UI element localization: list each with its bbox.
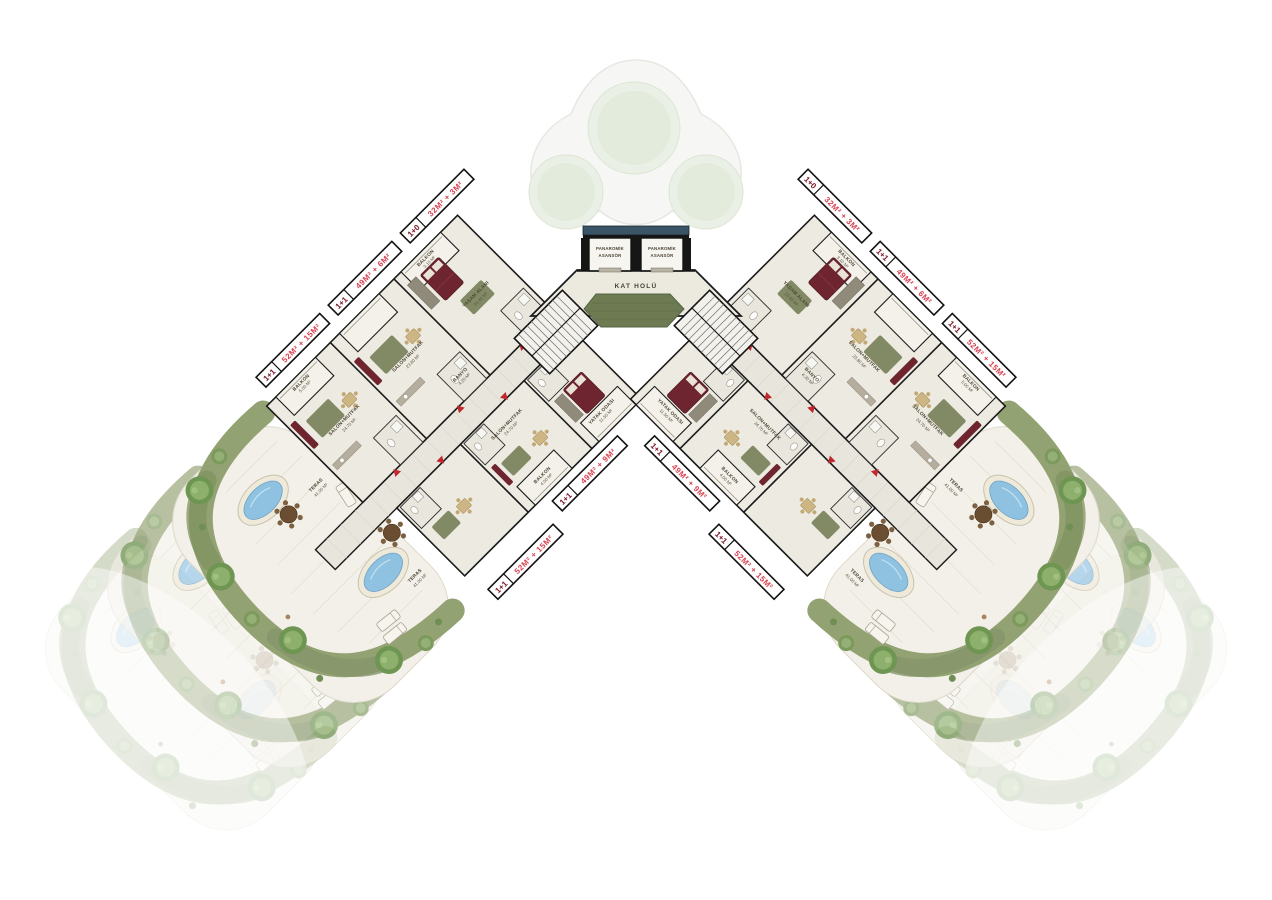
unit-area: 32M² + 3M² — [426, 180, 465, 219]
unit-area: 52M² + 15M² — [513, 533, 555, 575]
floor-plan-canvas: 1+0 32M² + 3M² 1+1 49M² + 6M² 1+1 52M² +… — [0, 0, 1272, 900]
top-garden-blob — [529, 60, 743, 229]
elevator-label: ASANSÖR — [651, 253, 675, 258]
unit-area: 52M² + 15M² — [732, 549, 774, 591]
hall-label: KAT HOLÜ — [615, 281, 658, 290]
site-plan-svg: 1+0 32M² + 3M² 1+1 49M² + 6M² 1+1 52M² +… — [0, 0, 1272, 900]
elevator-door — [651, 268, 673, 272]
elevator-label: ASANSÖR — [599, 253, 623, 258]
elevator-door — [599, 268, 621, 272]
elevator-label: PANAROMİK — [596, 246, 625, 251]
planted-hexagon — [584, 294, 684, 327]
elevator-core — [577, 226, 695, 272]
elevator-label: PANAROMİK — [648, 246, 677, 251]
